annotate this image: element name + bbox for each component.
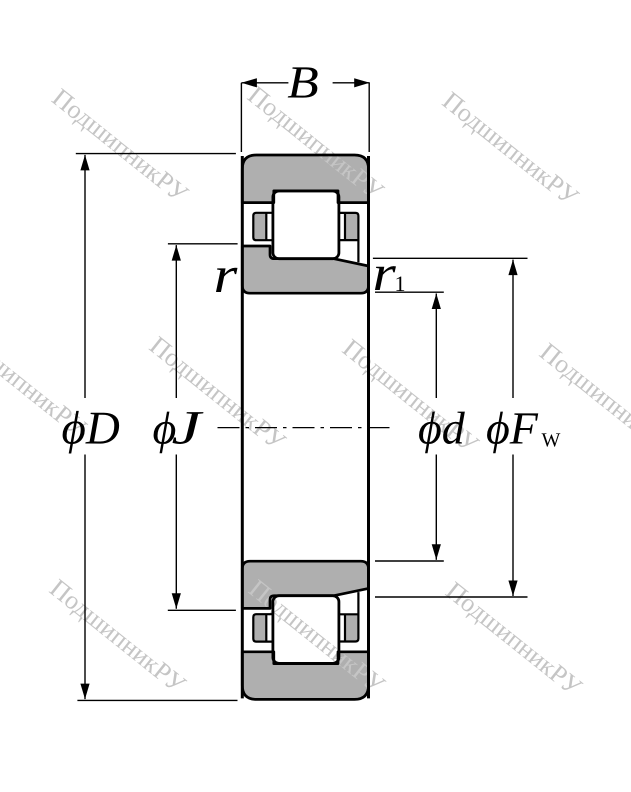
svg-text:ϕd: ϕd	[418, 403, 466, 454]
svg-text:ϕD: ϕD	[62, 403, 120, 455]
svg-text:1: 1	[395, 271, 406, 296]
svg-text:ϕF: ϕF	[486, 403, 539, 454]
svg-text:B: B	[287, 57, 318, 108]
svg-text:r: r	[373, 245, 398, 301]
svg-text:J: J	[172, 402, 205, 455]
svg-text:W: W	[542, 430, 561, 452]
svg-text:r: r	[214, 246, 239, 303]
